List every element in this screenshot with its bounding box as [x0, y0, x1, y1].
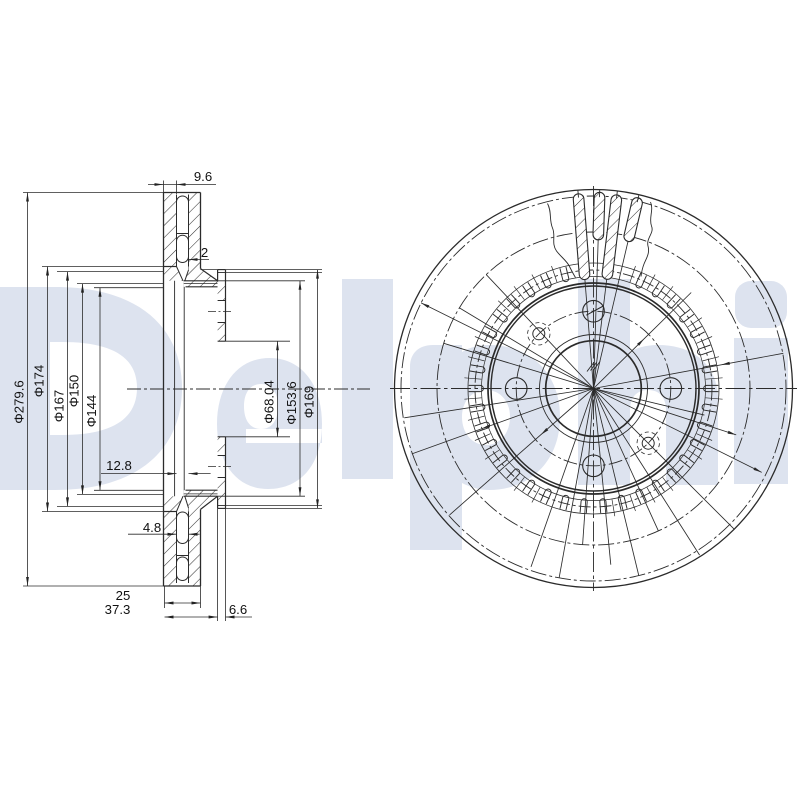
- svg-text:Φ169: Φ169: [302, 386, 317, 419]
- svg-text:Φ144: Φ144: [84, 395, 99, 428]
- svg-text:Φ174: Φ174: [32, 365, 47, 398]
- svg-text:2: 2: [201, 245, 208, 260]
- svg-text:Φ279.6: Φ279.6: [12, 380, 27, 424]
- svg-text:9.6: 9.6: [194, 169, 212, 184]
- svg-text:37.3: 37.3: [105, 602, 131, 617]
- svg-text:Φ150: Φ150: [67, 375, 82, 408]
- svg-text:Φ167: Φ167: [52, 390, 67, 423]
- svg-text:6.6: 6.6: [229, 602, 247, 617]
- svg-text:Φ68.04: Φ68.04: [262, 380, 277, 424]
- svg-text:4.8: 4.8: [143, 520, 161, 535]
- svg-text:25: 25: [116, 588, 131, 603]
- svg-text:Φ153.6: Φ153.6: [284, 381, 299, 425]
- svg-text:12.8: 12.8: [106, 458, 132, 473]
